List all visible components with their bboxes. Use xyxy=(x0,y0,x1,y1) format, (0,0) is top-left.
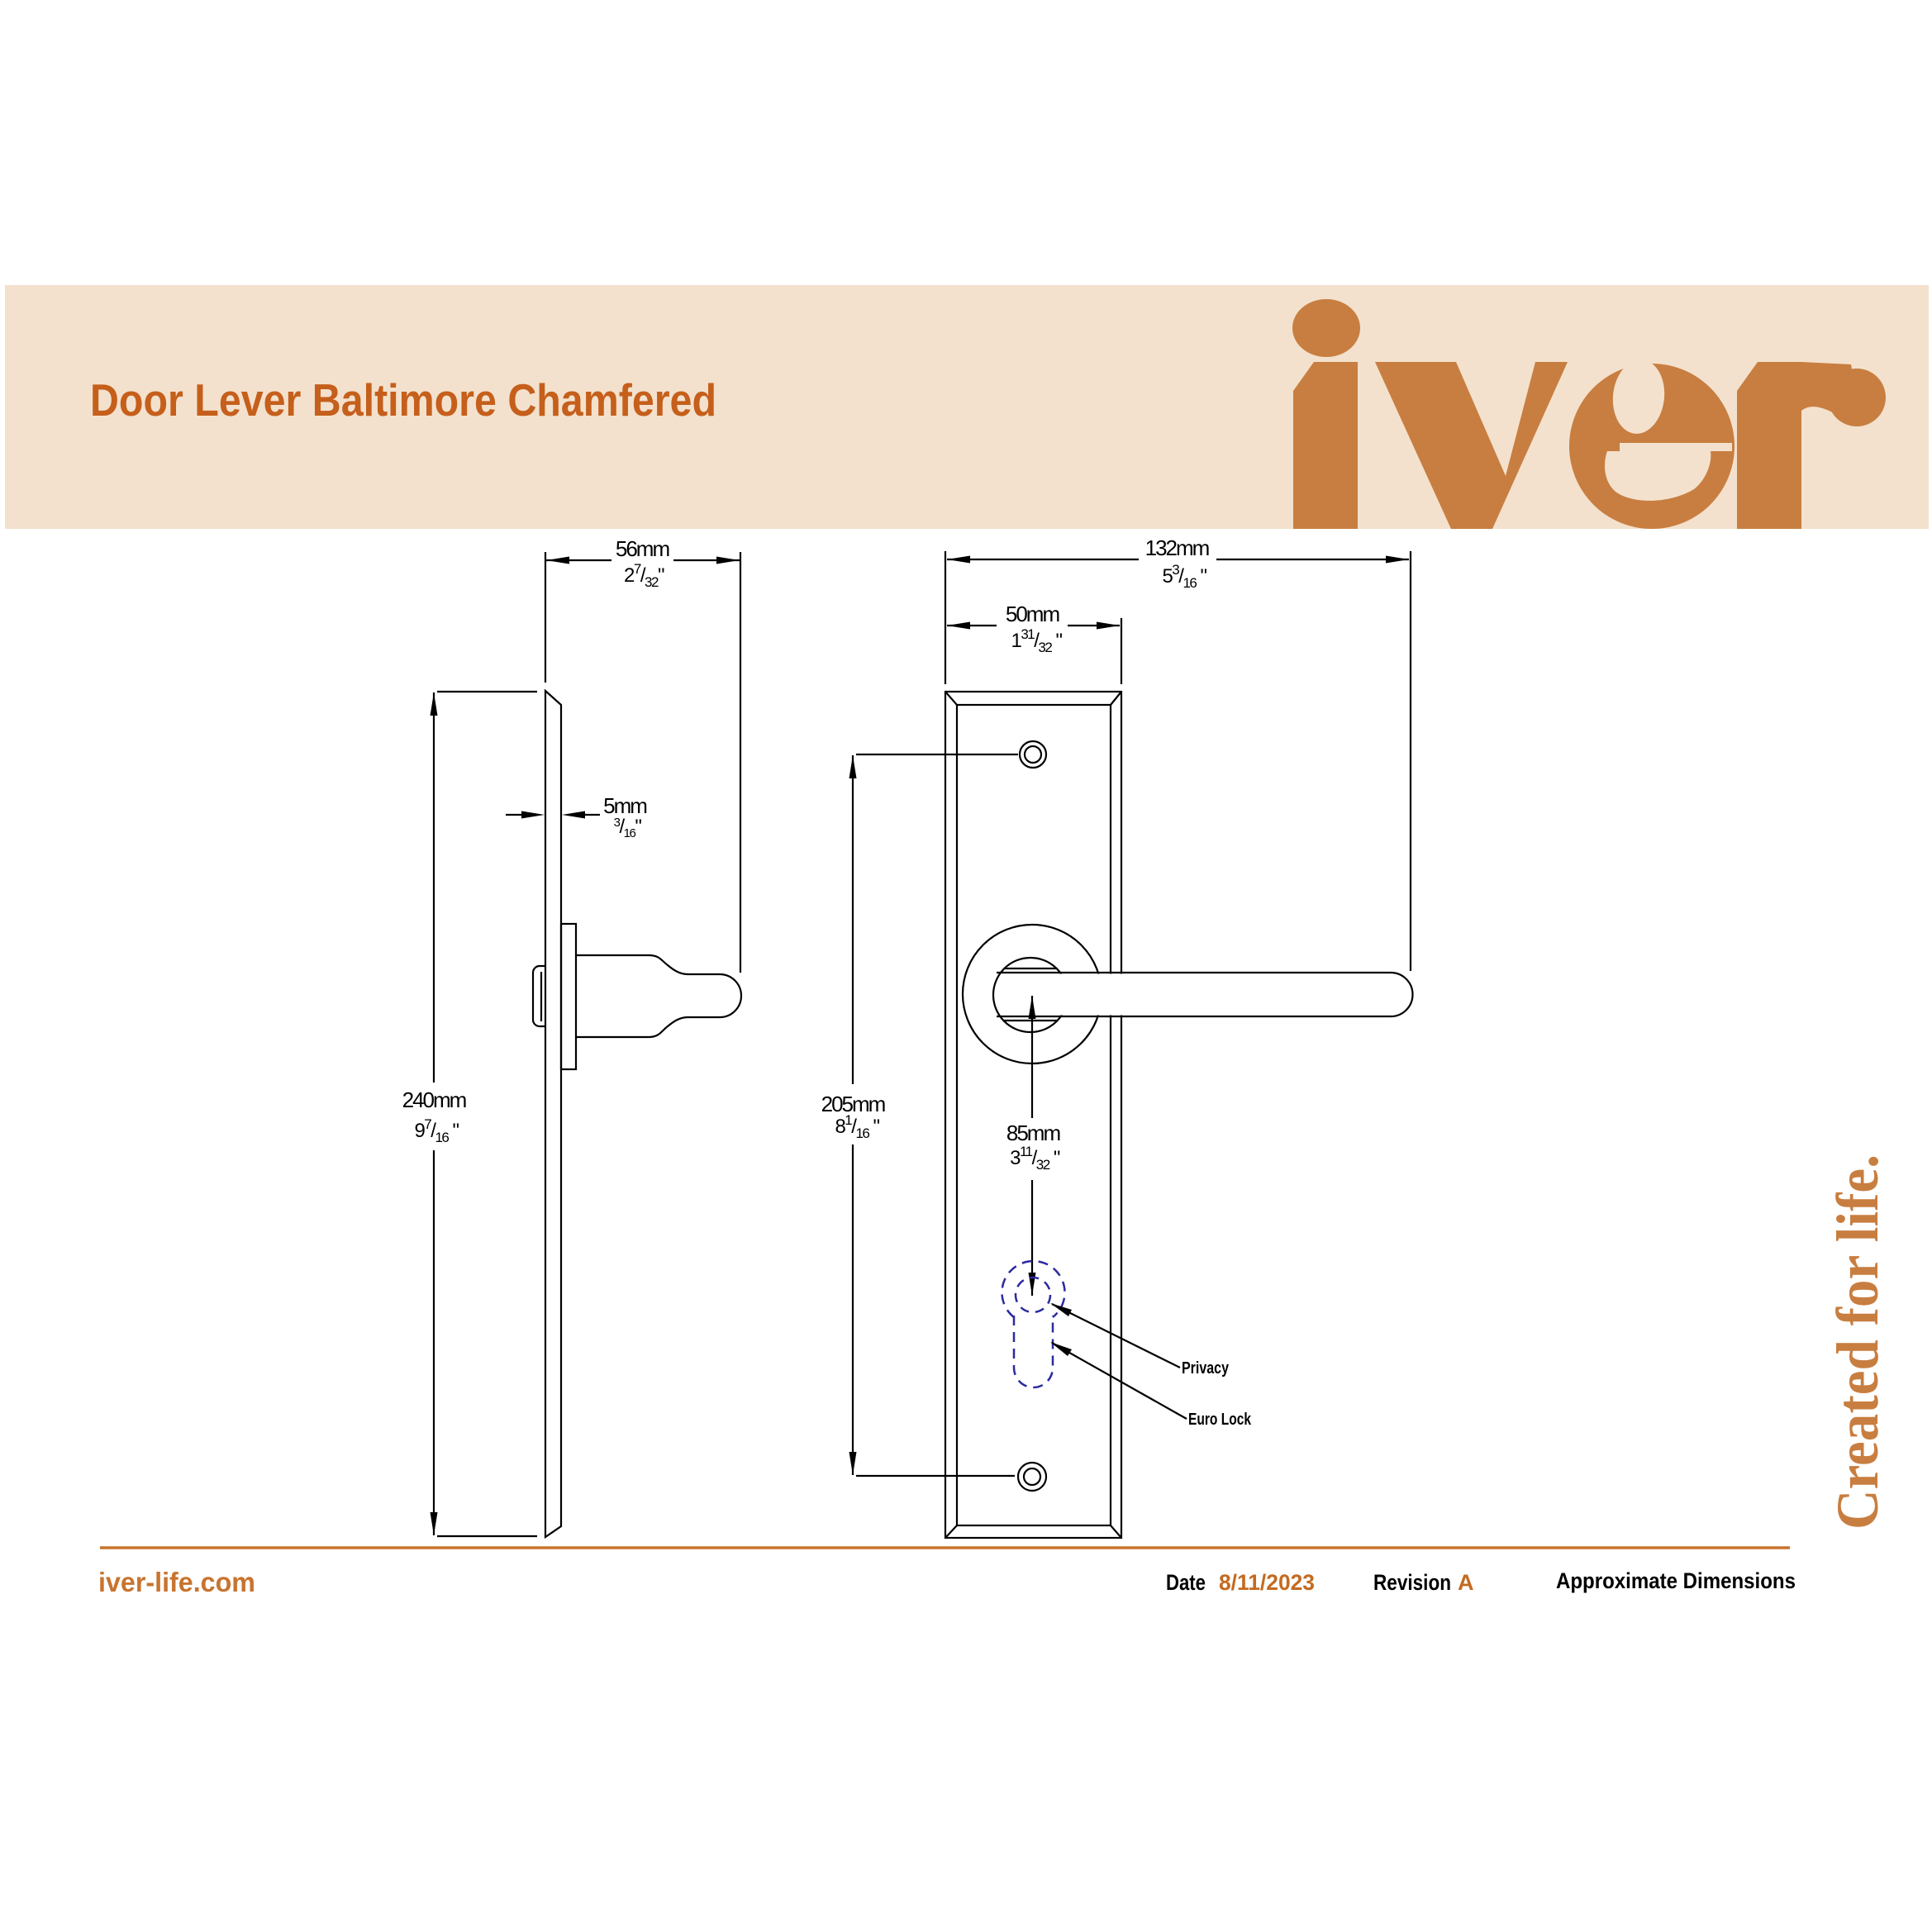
svg-text:Door Lever Baltimore Chamfered: Door Lever Baltimore Chamfered xyxy=(90,374,716,426)
svg-text:Euro Lock: Euro Lock xyxy=(1188,1411,1252,1429)
svg-text:iver-life.com: iver-life.com xyxy=(98,1567,255,1597)
svg-text:56mm: 56mm xyxy=(616,536,669,561)
svg-text:Revision: Revision xyxy=(1373,1570,1451,1595)
svg-text:50mm: 50mm xyxy=(1006,602,1059,626)
svg-text:Date: Date xyxy=(1166,1570,1206,1595)
svg-text:A: A xyxy=(1458,1570,1474,1595)
svg-text:205mm: 205mm xyxy=(821,1092,885,1116)
svg-text:8/11/2023: 8/11/2023 xyxy=(1219,1570,1315,1595)
svg-text:85mm: 85mm xyxy=(1006,1121,1060,1145)
svg-text:Approximate Dimensions: Approximate Dimensions xyxy=(1556,1568,1796,1593)
svg-text:27/32": 27/32" xyxy=(624,561,664,590)
svg-text:240mm: 240mm xyxy=(402,1087,466,1112)
svg-text:Privacy: Privacy xyxy=(1182,1359,1230,1378)
svg-text:311/32 ": 311/32 " xyxy=(1010,1144,1060,1173)
svg-text:131/32 ": 131/32 " xyxy=(1011,626,1062,655)
svg-text:132mm: 132mm xyxy=(1145,535,1209,560)
svg-text:Created for life.: Created for life. xyxy=(1825,1154,1891,1530)
svg-text:5mm: 5mm xyxy=(603,793,646,818)
